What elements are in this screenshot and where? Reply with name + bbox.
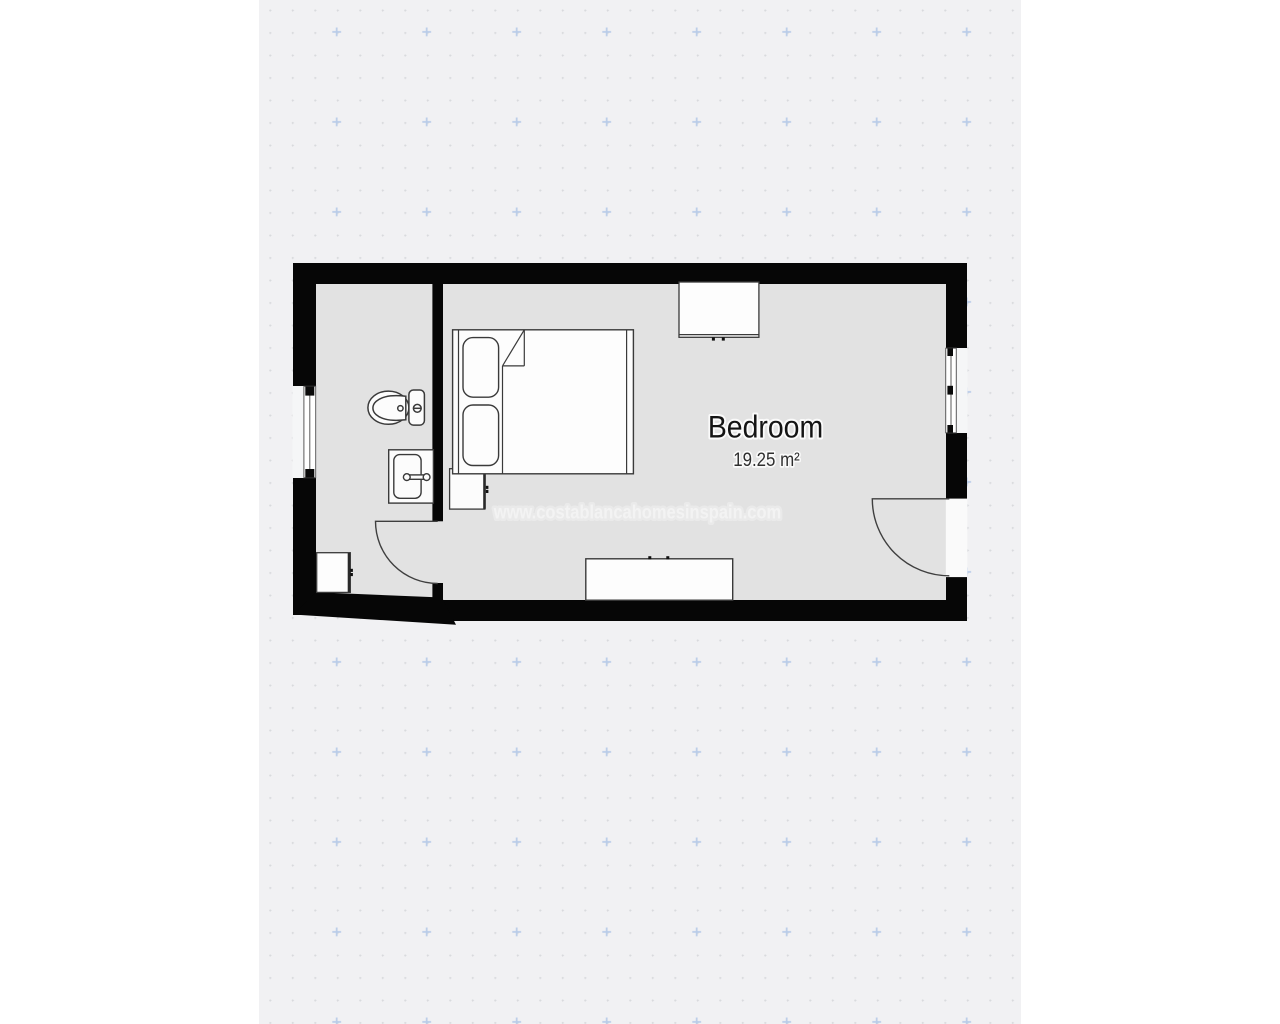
svg-text:www.costablancahomesinspain.co: www.costablancahomesinspain.com bbox=[493, 503, 781, 524]
svg-text:Bedroom: Bedroom bbox=[708, 409, 823, 445]
svg-text:19.25 m²: 19.25 m² bbox=[733, 450, 800, 471]
